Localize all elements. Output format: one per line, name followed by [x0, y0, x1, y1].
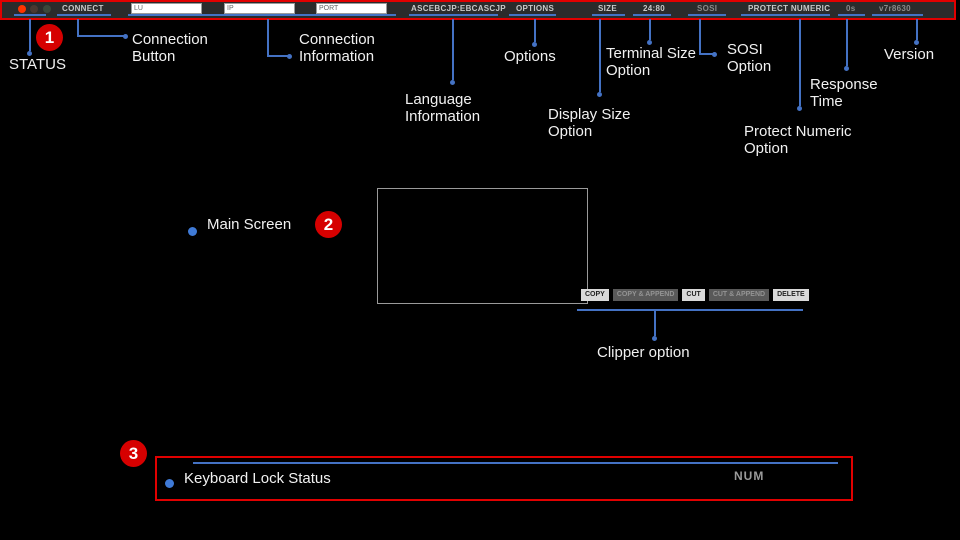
callout-line-terminal-size [649, 19, 651, 40]
underline-connection-info [128, 14, 396, 16]
callout-dot-response-time [844, 66, 849, 71]
response-time-value: 0s [846, 4, 856, 14]
delete-button[interactable]: DELETE [773, 289, 809, 301]
callout-dot-sosi [712, 52, 717, 57]
callout-dot-version [914, 40, 919, 45]
label-display-size-option: Display Size Option [548, 106, 643, 140]
marker-2: 2 [315, 211, 342, 238]
underline-status [14, 14, 46, 16]
lu-input[interactable] [131, 3, 202, 14]
callout-line-response-time [846, 19, 848, 66]
label-options: Options [504, 48, 574, 65]
callout-dot-clipper [652, 336, 657, 341]
annotated-screenshot: CONNECT ASCEBCJP:EBCASCJP OPTIONS SIZE 2… [0, 0, 960, 540]
terminal-size-button[interactable]: 24:80 [643, 4, 665, 14]
callout-line-connection-info-v [267, 19, 269, 57]
copy-button[interactable]: COPY [581, 289, 609, 301]
label-connection-information: Connection Information [299, 31, 394, 65]
callout-underline-clipper [577, 309, 803, 311]
language-info-button[interactable]: ASCEBCJP:EBCASCJP [411, 4, 506, 14]
callout-line-language [452, 19, 454, 80]
label-main-screen: Main Screen [207, 216, 317, 233]
marker-1: 1 [36, 24, 63, 51]
marker-3: 3 [120, 440, 147, 467]
underline-options [509, 14, 556, 16]
label-clipper-option: Clipper option [597, 344, 727, 361]
main-screen-bullet-icon [188, 227, 197, 236]
num-lock-indicator: NUM [734, 469, 764, 483]
underline-terminal-size [633, 14, 671, 16]
label-protect-numeric-option: Protect Numeric Option [744, 123, 864, 157]
options-button[interactable]: OPTIONS [516, 4, 554, 14]
underline-version [872, 14, 923, 16]
callout-line-connection-button-h [77, 35, 124, 37]
status-indicator-red-icon [18, 5, 26, 13]
label-status: STATUS [9, 56, 84, 73]
callout-line-version [916, 19, 918, 40]
label-sosi-option: SOSI Option [727, 41, 787, 75]
callout-line-connection-info-h [267, 55, 288, 57]
callout-line-options [534, 19, 536, 42]
callout-dot-protect-numeric [797, 106, 802, 111]
callout-dot-options [532, 42, 537, 47]
label-connection-button: Connection Button [132, 31, 224, 65]
cut-button[interactable]: CUT [682, 289, 704, 301]
statusbar-divider-line [193, 462, 838, 464]
cut-append-button[interactable]: CUT & APPEND [709, 289, 769, 301]
underline-response-time [838, 14, 865, 16]
copy-append-button[interactable]: COPY & APPEND [613, 289, 679, 301]
status-indicator-dim-green-icon [43, 5, 51, 13]
callout-line-clipper [654, 311, 656, 336]
callout-dot-connection-button [123, 34, 128, 39]
label-version: Version [884, 46, 944, 63]
keyboard-lock-bullet-icon [165, 479, 174, 488]
clipper-toolbar: COPY COPY & APPEND CUT CUT & APPEND DELE… [581, 289, 809, 301]
underline-sosi [688, 14, 726, 16]
underline-connect [57, 14, 111, 16]
underline-size [592, 14, 625, 16]
version-value: v7r8630 [879, 4, 911, 14]
label-keyboard-lock-status: Keyboard Lock Status [184, 470, 404, 487]
display-size-button[interactable]: SIZE [598, 4, 617, 14]
callout-dot-display-size [597, 92, 602, 97]
protect-numeric-toggle[interactable]: PROTECT NUMERIC [748, 4, 830, 14]
port-input[interactable] [316, 3, 387, 14]
underline-protect-numeric [741, 14, 830, 16]
connect-button[interactable]: CONNECT [62, 4, 104, 14]
label-language-information: Language Information [405, 91, 500, 125]
label-response-time: Response Time [810, 76, 895, 110]
main-screen-area[interactable] [377, 188, 588, 304]
callout-dot-language [450, 80, 455, 85]
sosi-toggle[interactable]: SOSI [697, 4, 717, 14]
callout-line-protect-numeric [799, 19, 801, 106]
ip-input[interactable] [224, 3, 295, 14]
callout-line-status [29, 19, 31, 51]
label-terminal-size-option: Terminal Size Option [606, 45, 706, 79]
callout-line-display-size [599, 19, 601, 92]
underline-language [409, 14, 498, 16]
status-indicator-dim-red-icon [30, 5, 38, 13]
callout-dot-connection-info [287, 54, 292, 59]
